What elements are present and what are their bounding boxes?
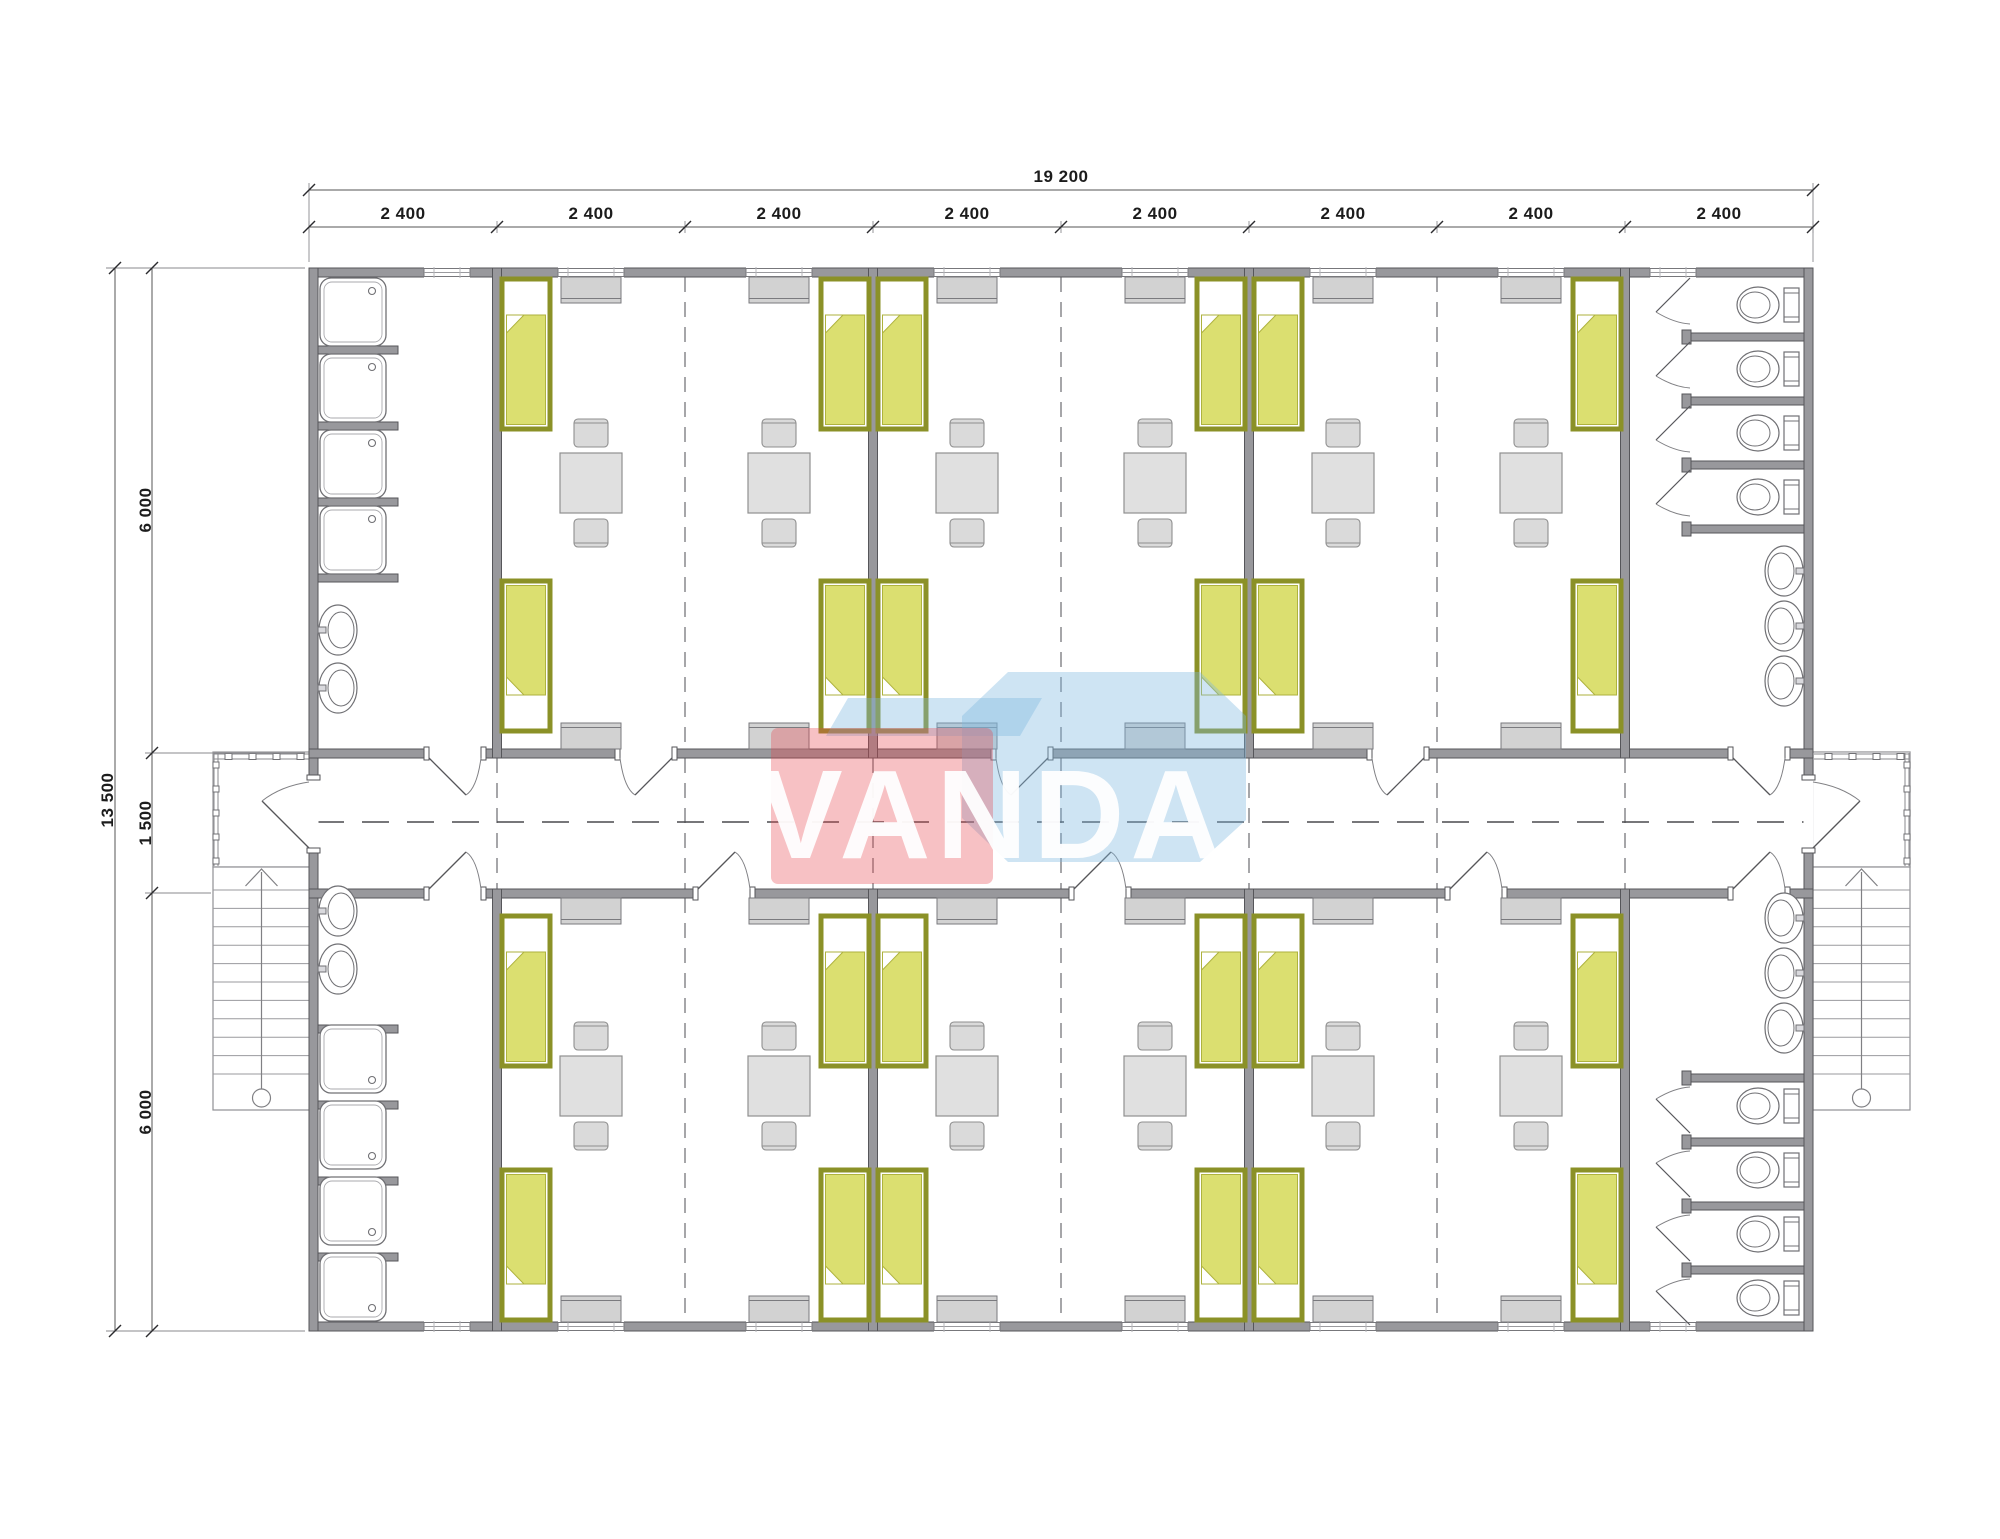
window [934, 1321, 1000, 1332]
stall-door-leaf [1656, 1163, 1690, 1197]
sink [318, 663, 357, 713]
bed [1573, 279, 1621, 429]
door [1367, 747, 1429, 795]
bed [502, 581, 550, 731]
porch-west [213, 752, 310, 867]
table-set [1312, 419, 1374, 547]
wardrobe-body [1125, 277, 1185, 303]
door-jamb [1445, 887, 1450, 900]
toilet-bowl-inner [1740, 292, 1770, 318]
shower-tray [320, 1101, 386, 1169]
partition [1690, 461, 1804, 469]
door-jamb [1424, 747, 1429, 760]
door-leaf [1733, 852, 1770, 889]
wardrobe [1125, 277, 1185, 303]
dim-label-module: 2 400 [380, 204, 425, 224]
bed-blanket [1578, 315, 1617, 425]
stall-door-leaf [1656, 1291, 1690, 1325]
shower-tray [320, 1253, 386, 1321]
window [558, 1321, 624, 1332]
shower-drain [369, 288, 376, 295]
sink [1765, 601, 1804, 651]
washroom-west-top [318, 278, 398, 713]
wardrobe [1313, 1296, 1373, 1322]
shower-drain [369, 1305, 376, 1312]
stall-door-swing [1656, 1087, 1690, 1099]
door [1445, 852, 1507, 900]
door [693, 852, 755, 900]
shower-stall [320, 1101, 386, 1169]
table [748, 1056, 810, 1116]
bed-blanket [1578, 586, 1617, 696]
toilet-stall-fixtures [1656, 1215, 1799, 1261]
door-leaf [429, 852, 466, 889]
wardrobe-body [1313, 277, 1373, 303]
sink [1765, 546, 1804, 596]
wardrobe-body [561, 723, 621, 749]
sink-basin [328, 951, 354, 987]
dim-label-module: 2 400 [944, 204, 989, 224]
wardrobe [1501, 1296, 1561, 1322]
bed-blanket [826, 315, 865, 425]
door-jamb [424, 887, 429, 900]
door-leaf [635, 758, 672, 795]
door-swing [620, 758, 635, 795]
wardrobe-body [1501, 898, 1561, 924]
shower-tray [320, 354, 386, 422]
bed-blanket [826, 952, 865, 1062]
shower-drain [369, 1077, 376, 1084]
wardrobe [561, 1296, 621, 1322]
bed [878, 279, 926, 429]
door-leaf [1387, 758, 1424, 795]
sink-tap [1796, 970, 1804, 976]
railing-post [1904, 834, 1910, 840]
bed [502, 279, 550, 429]
door-leaf [698, 852, 735, 889]
table-set [1312, 1022, 1374, 1150]
door-jamb [307, 775, 320, 780]
table-set [748, 419, 810, 547]
wardrobe-body [937, 898, 997, 924]
door-swing [735, 852, 750, 889]
railing-post [213, 834, 219, 840]
watermark-text: VANDA [759, 744, 1228, 885]
window [934, 267, 1000, 278]
wardrobe-body [1313, 723, 1373, 749]
wardrobe [1501, 277, 1561, 303]
railing-post [1825, 754, 1832, 760]
bed [1197, 916, 1245, 1066]
stall-door-leaf [1656, 1227, 1690, 1261]
sink-tap [1796, 678, 1804, 684]
sink-basin [1768, 1010, 1794, 1046]
sink-tap [318, 685, 326, 691]
sink-tap [318, 966, 326, 972]
stair-start-marker [1853, 1089, 1871, 1107]
wardrobe-body [937, 277, 997, 303]
toilet-stall-fixtures [1656, 470, 1799, 516]
table [1312, 453, 1374, 513]
sink-basin [1768, 663, 1794, 699]
shower-stall [320, 430, 386, 498]
sink-tap [318, 627, 326, 633]
wardrobe-body [749, 1296, 809, 1322]
table-set [748, 1022, 810, 1150]
door-jamb [1069, 887, 1074, 900]
stall-door-swing [1656, 440, 1690, 452]
shower-tray [320, 430, 386, 498]
dim-label-v-seg: 6 000 [136, 1089, 156, 1134]
railing-post [213, 858, 219, 864]
dim-label-module: 2 400 [1132, 204, 1177, 224]
porch-east [1813, 752, 1910, 867]
stair-west [213, 867, 310, 1110]
bed-blanket [883, 1175, 922, 1285]
dim-label-module: 2 400 [568, 204, 613, 224]
bed [1197, 1170, 1245, 1320]
wardrobe-body [561, 277, 621, 303]
door-jamb [307, 848, 320, 853]
wardrobe-body [1313, 1296, 1373, 1322]
sink [318, 886, 357, 936]
door [1728, 747, 1790, 795]
toilet-stall-fixtures [1656, 1087, 1799, 1133]
dim-label-total-height: 13 500 [98, 773, 118, 828]
wardrobe [1125, 898, 1185, 924]
wardrobe [561, 723, 621, 749]
bed-blanket [1202, 586, 1241, 696]
sink-basin [328, 670, 354, 706]
wardrobe [1313, 723, 1373, 749]
bed-blanket [1259, 586, 1298, 696]
wardrobe-body [561, 898, 621, 924]
door [615, 747, 677, 795]
wardrobe-body [1501, 277, 1561, 303]
shower-stall [320, 1253, 386, 1321]
window [746, 267, 812, 278]
toilet-bowl-inner [1740, 1221, 1770, 1247]
stair-east [1813, 867, 1910, 1110]
wardrobe [561, 277, 621, 303]
sink [1765, 893, 1804, 943]
window [424, 267, 470, 278]
wardrobe [561, 898, 621, 924]
shower-drain [369, 1229, 376, 1236]
dim-label-total-width: 19 200 [1034, 167, 1089, 187]
wardrobe [749, 898, 809, 924]
railing-post [1904, 762, 1910, 768]
bed-blanket [1259, 315, 1298, 425]
shower-drain [369, 516, 376, 523]
wardrobe-body [1313, 898, 1373, 924]
railing-post [273, 754, 280, 760]
partition [318, 346, 398, 354]
bed [878, 916, 926, 1066]
partition [1690, 333, 1804, 341]
door-jamb [1802, 848, 1815, 853]
bed [1254, 279, 1302, 429]
table-set [1500, 1022, 1562, 1150]
door-swing [1487, 852, 1502, 889]
table-set [1124, 419, 1186, 547]
washroom-west-bottom [318, 886, 398, 1321]
table [1312, 1056, 1374, 1116]
wall [309, 889, 1813, 898]
wardrobe [749, 277, 809, 303]
dim-label-module: 2 400 [756, 204, 801, 224]
toilet-bowl-inner [1740, 484, 1770, 510]
stall-door-leaf [1656, 342, 1690, 376]
window [1498, 1321, 1564, 1332]
door-jamb [424, 747, 429, 760]
toilet-bowl-inner [1740, 356, 1770, 382]
floor-plan-drawing: VANDA [0, 0, 2000, 1539]
railing-post [225, 754, 232, 760]
window [1310, 1321, 1376, 1332]
wardrobe [749, 1296, 809, 1322]
railing-post [297, 754, 304, 760]
wardrobe [937, 898, 997, 924]
wardrobe [1313, 898, 1373, 924]
toilet-stall-fixtures [1656, 1279, 1799, 1325]
bed [1254, 581, 1302, 731]
window [424, 1321, 470, 1332]
window [1498, 267, 1564, 278]
stall-door-swing [1656, 312, 1690, 324]
shower-stall [320, 1025, 386, 1093]
dim-label-v-seg: 1 500 [136, 800, 156, 845]
toilet-stall-fixtures [1656, 406, 1799, 452]
table [936, 453, 998, 513]
toilet-bowl-inner [1740, 1093, 1770, 1119]
washroom-east-bottom [1656, 893, 1804, 1325]
railing-post [249, 754, 256, 760]
table [1500, 453, 1562, 513]
sink-tap [1796, 915, 1804, 921]
sink [1765, 656, 1804, 706]
window [1650, 1321, 1696, 1332]
sink [1765, 1003, 1804, 1053]
door-swing [1372, 758, 1387, 795]
bed [821, 916, 869, 1066]
wardrobe-body [1501, 1296, 1561, 1322]
wardrobe-body [749, 277, 809, 303]
sink-basin [328, 612, 354, 648]
dim-label-v-seg: 6 000 [136, 487, 156, 532]
bed-blanket [1578, 1175, 1617, 1285]
toilet-stall-fixtures [1656, 1151, 1799, 1197]
sink [1765, 948, 1804, 998]
bed [502, 916, 550, 1066]
bed [1197, 279, 1245, 429]
shower-stall [320, 354, 386, 422]
wardrobe [1501, 898, 1561, 924]
door-jamb [1728, 887, 1733, 900]
shower-drain [369, 1153, 376, 1160]
window [558, 267, 624, 278]
bed [1254, 1170, 1302, 1320]
bed-blanket [1202, 1175, 1241, 1285]
sink-basin [1768, 553, 1794, 589]
table-set [560, 419, 622, 547]
sink-basin [328, 893, 354, 929]
bed-blanket [1202, 315, 1241, 425]
wardrobe [937, 1296, 997, 1322]
door-jamb [1802, 775, 1815, 780]
wardrobe [937, 277, 997, 303]
shower-tray [320, 278, 386, 346]
bed [502, 1170, 550, 1320]
table [936, 1056, 998, 1116]
table [560, 453, 622, 513]
dim-label-module: 2 400 [1320, 204, 1365, 224]
bed [878, 1170, 926, 1320]
table [1500, 1056, 1562, 1116]
stall-door-leaf [1656, 278, 1690, 312]
bed-blanket [1259, 1175, 1298, 1285]
bed [1254, 916, 1302, 1066]
sink-tap [1796, 623, 1804, 629]
stair-start-marker [253, 1089, 271, 1107]
dim-label-module: 2 400 [1508, 204, 1553, 224]
partition [318, 422, 398, 430]
door-leaf [1450, 852, 1487, 889]
partition [1690, 1202, 1804, 1210]
bed [1573, 916, 1621, 1066]
toilet-stall-fixtures [1656, 342, 1799, 388]
partition-post [1682, 1135, 1691, 1149]
partition [1690, 1138, 1804, 1146]
railing-post [213, 762, 219, 768]
stall-door-leaf [1656, 470, 1690, 504]
partition-post [1682, 1263, 1691, 1277]
shower-stall [320, 1177, 386, 1245]
shower-stall [320, 278, 386, 346]
shower-tray [320, 506, 386, 574]
partition [318, 574, 398, 582]
window [1310, 267, 1376, 278]
stall-door-swing [1656, 1151, 1690, 1163]
railing-post [213, 810, 219, 816]
stall-door-swing [1656, 1279, 1690, 1291]
wardrobe-body [561, 1296, 621, 1322]
bed-blanket [507, 1175, 546, 1285]
wardrobe-body [1125, 898, 1185, 924]
partition-post [1682, 1199, 1691, 1213]
railing-post [1873, 754, 1880, 760]
railing-post [1904, 858, 1910, 864]
bed-blanket [1202, 952, 1241, 1062]
wall [309, 268, 1813, 277]
table-set [936, 419, 998, 547]
bed-blanket [826, 1175, 865, 1285]
shower-tray [320, 1025, 386, 1093]
door-swing [466, 758, 481, 795]
wardrobe-body [1501, 723, 1561, 749]
stall-door-leaf [1656, 406, 1690, 440]
partition [1690, 397, 1804, 405]
bed-blanket [507, 586, 546, 696]
shower-drain [369, 440, 376, 447]
sink-tap [1796, 568, 1804, 574]
shower-stall [320, 506, 386, 574]
door-leaf [429, 758, 466, 795]
wardrobe [1501, 723, 1561, 749]
washroom-east-top [1656, 278, 1804, 706]
table-set [1124, 1022, 1186, 1150]
sink-tap [1796, 1025, 1804, 1031]
door-jamb [693, 887, 698, 900]
toilet-bowl-inner [1740, 1285, 1770, 1311]
door-swing [1770, 852, 1785, 889]
toilet-stall-fixtures [1656, 278, 1799, 324]
window [1122, 267, 1188, 278]
door [424, 852, 486, 900]
bed-blanket [883, 586, 922, 696]
table [560, 1056, 622, 1116]
dim-label-module: 2 400 [1696, 204, 1741, 224]
wardrobe-body [937, 1296, 997, 1322]
partition [1690, 1266, 1804, 1274]
toilet-bowl-inner [1740, 1157, 1770, 1183]
table-set [1500, 419, 1562, 547]
table-set [936, 1022, 998, 1150]
sink-tap [318, 908, 326, 914]
door-leaf [1733, 758, 1770, 795]
wardrobe-body [1125, 1296, 1185, 1322]
railing-post [213, 786, 219, 792]
wardrobe [1313, 277, 1373, 303]
bed [821, 279, 869, 429]
partition [1690, 1074, 1804, 1082]
sink-basin [1768, 955, 1794, 991]
porch-deck [213, 752, 310, 867]
bed [1573, 1170, 1621, 1320]
partition [1690, 525, 1804, 533]
sink-basin [1768, 900, 1794, 936]
bed-blanket [507, 952, 546, 1062]
bed-blanket [1259, 952, 1298, 1062]
stall-door-swing [1656, 504, 1690, 516]
window [1122, 1321, 1188, 1332]
shower-drain [369, 364, 376, 371]
partition-post [1682, 1071, 1691, 1085]
railing-post [1849, 754, 1856, 760]
wardrobe [1125, 1296, 1185, 1322]
sink-basin [1768, 608, 1794, 644]
railing-post [1897, 754, 1904, 760]
wall [309, 1322, 1813, 1331]
window [746, 1321, 812, 1332]
bed-blanket [1578, 952, 1617, 1062]
porch-deck [1813, 752, 1910, 867]
bed-blanket [883, 315, 922, 425]
door-jamb [481, 887, 486, 900]
door-jamb [481, 747, 486, 760]
table [1124, 453, 1186, 513]
partition-post [1682, 522, 1691, 536]
bed [1573, 581, 1621, 731]
shower-tray [320, 1177, 386, 1245]
railing-post [1904, 786, 1910, 792]
door [424, 747, 486, 795]
door-jamb [672, 747, 677, 760]
bed-blanket [826, 586, 865, 696]
bed-blanket [507, 315, 546, 425]
floor-plan-sheet: VANDA 19 200 2 400 2 400 2 400 2 400 2 4… [0, 0, 2000, 1539]
railing-post [1904, 810, 1910, 816]
